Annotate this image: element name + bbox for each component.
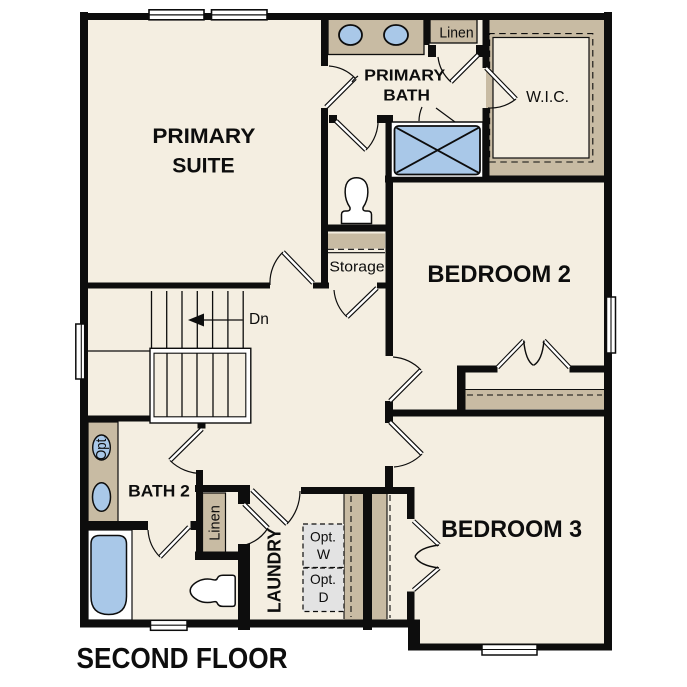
svg-text:SUITE: SUITE <box>172 154 234 178</box>
svg-text:D: D <box>318 589 328 605</box>
svg-text:PRIMARY: PRIMARY <box>152 124 255 148</box>
svg-text:Storage: Storage <box>329 260 384 276</box>
svg-text:Opt.: Opt. <box>310 529 336 545</box>
svg-text:BEDROOM 2: BEDROOM 2 <box>427 261 571 288</box>
svg-text:Opt.: Opt. <box>310 571 336 587</box>
svg-text:Linen: Linen <box>207 505 224 541</box>
svg-text:Opt.: Opt. <box>94 435 110 460</box>
svg-text:BATH: BATH <box>383 88 430 105</box>
svg-text:PRIMARY: PRIMARY <box>364 68 445 85</box>
svg-text:BEDROOM 3: BEDROOM 3 <box>441 516 582 543</box>
svg-text:SECOND FLOOR: SECOND FLOOR <box>77 643 288 675</box>
svg-text:W: W <box>317 546 331 562</box>
svg-text:W.I.C.: W.I.C. <box>526 89 569 106</box>
svg-text:BATH 2: BATH 2 <box>128 481 190 500</box>
svg-text:LAUNDRY: LAUNDRY <box>265 528 285 613</box>
svg-text:Dn: Dn <box>249 311 269 328</box>
svg-text:Linen: Linen <box>439 25 473 42</box>
